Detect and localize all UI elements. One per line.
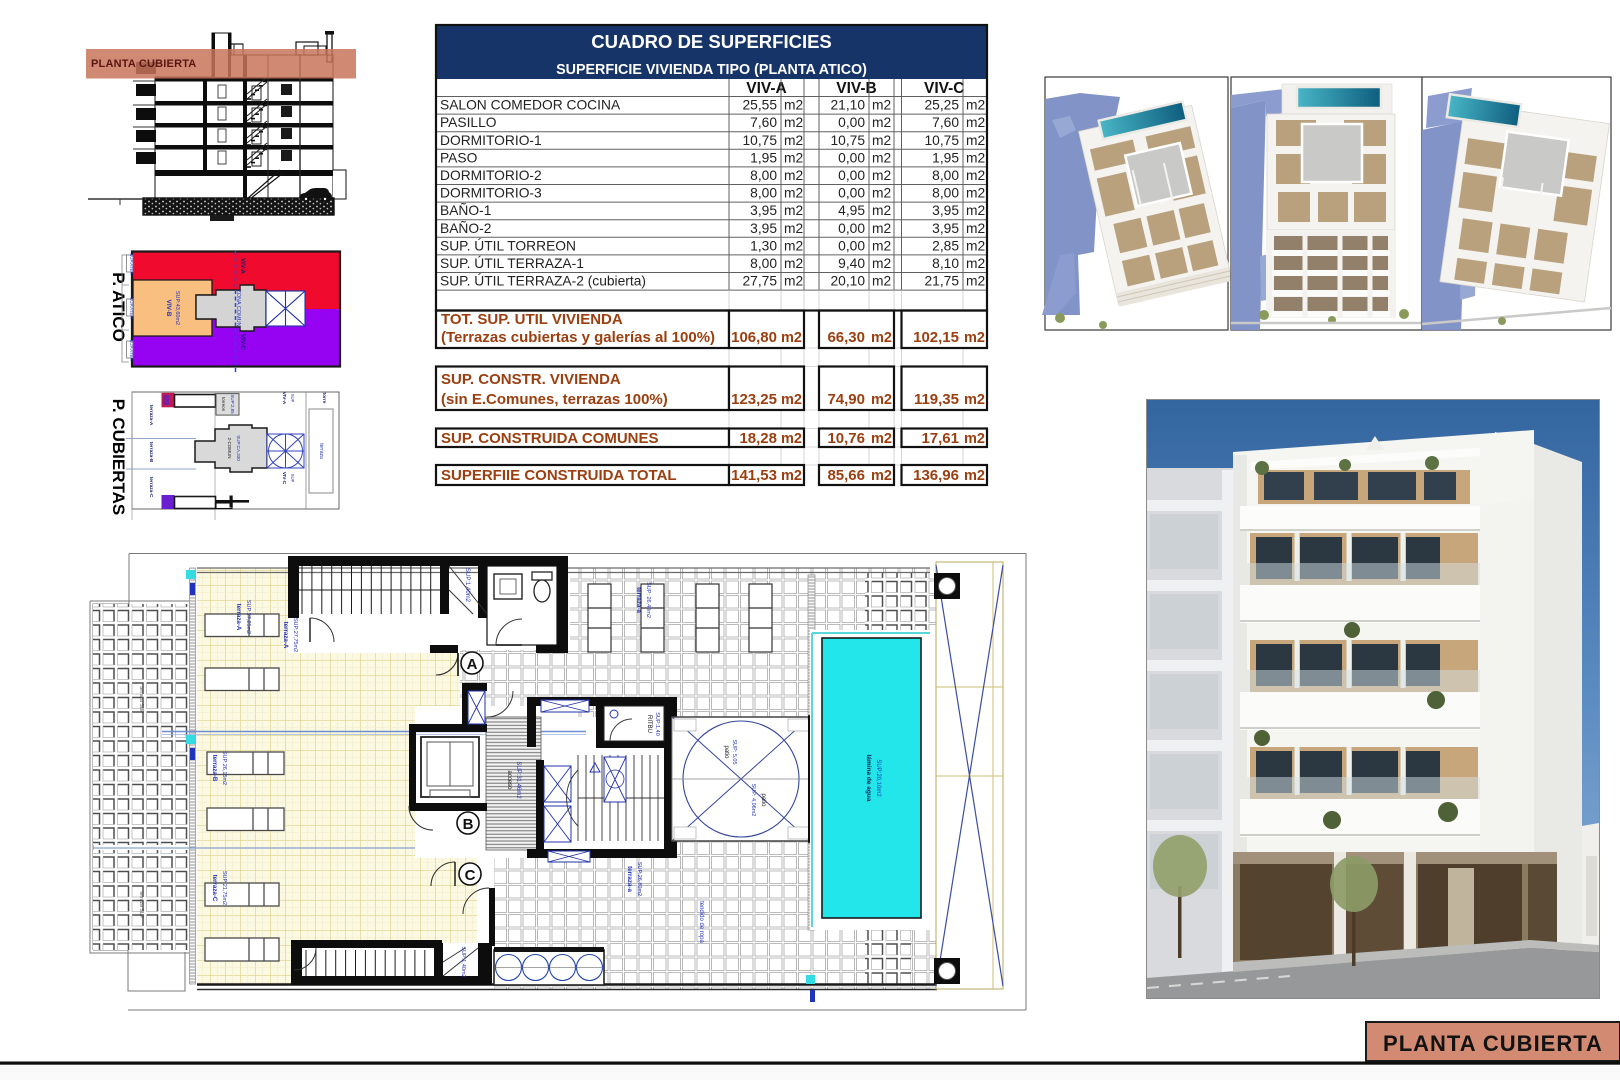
- svg-text:0,00: 0,00: [838, 221, 865, 236]
- svg-text:3,95: 3,95: [750, 203, 777, 218]
- svg-text:141,53: 141,53: [731, 467, 777, 484]
- svg-text:VIV-B: VIV-B: [165, 300, 172, 317]
- svg-text:SUPERFICIE VIVIENDA TIPO (PLA: SUPERFICIE VIVIENDA TIPO (PLANTA ATICO): [556, 62, 867, 78]
- svg-text:DORMITORIO-1: DORMITORIO-1: [440, 133, 542, 148]
- svg-text:TOT. SUP. UTIL VIVIENDA: TOT. SUP. UTIL VIVIENDA: [441, 311, 623, 328]
- svg-text:m2: m2: [872, 186, 891, 201]
- svg-text:SUP. ÚTIL TERRAZA-1: SUP. ÚTIL TERRAZA-1: [440, 255, 584, 271]
- svg-text:2,85: 2,85: [932, 238, 959, 253]
- svg-text:VIV-C: VIV-C: [281, 472, 287, 485]
- svg-text:ZONA COMUN: ZONA COMUN: [235, 289, 241, 326]
- svg-text:m2: m2: [781, 468, 802, 484]
- svg-text:(sin E.Comunes, terrazas 100%): (sin E.Comunes, terrazas 100%): [441, 391, 668, 408]
- svg-text:VIV-A: VIV-A: [239, 258, 245, 274]
- svg-text:m2: m2: [781, 431, 802, 447]
- svg-text:SUP: SUP: [290, 474, 295, 483]
- svg-text:SUP:26,15m2: SUP:26,15m2: [221, 751, 227, 785]
- svg-text:SUP.ATER: SUP.ATER: [129, 297, 134, 319]
- svg-text:terraza-a: terraza-a: [626, 866, 633, 892]
- svg-text:m2: m2: [964, 330, 985, 346]
- svg-text:m2: m2: [966, 256, 985, 271]
- svg-text:1,95: 1,95: [750, 150, 777, 165]
- svg-text:terraza-A: terraza-A: [282, 622, 289, 649]
- svg-text:BAÑO-1: BAÑO-1: [440, 202, 491, 218]
- svg-text:terraza-A: terraza-A: [148, 405, 154, 426]
- svg-text:m2: m2: [964, 431, 985, 447]
- svg-text:m2: m2: [872, 203, 891, 218]
- svg-text:m2: m2: [966, 168, 985, 183]
- svg-text:0,00: 0,00: [838, 150, 865, 165]
- svg-text:m2: m2: [871, 468, 892, 484]
- svg-text:SALON COMEDOR COCINA: SALON COMEDOR COCINA: [440, 98, 621, 113]
- svg-text:SUP:21,75m2: SUP:21,75m2: [221, 871, 227, 905]
- svg-text:m2: m2: [966, 238, 985, 253]
- svg-text:123,25: 123,25: [731, 391, 777, 408]
- svg-text:RITBU: RITBU: [646, 715, 652, 733]
- svg-text:8,00: 8,00: [932, 186, 959, 201]
- svg-text:m2: m2: [966, 221, 985, 236]
- svg-text:3,95: 3,95: [932, 203, 959, 218]
- svg-text:m2: m2: [966, 186, 985, 201]
- svg-text:m2: m2: [964, 468, 985, 484]
- svg-text:m2: m2: [966, 274, 985, 289]
- svg-text:m2: m2: [872, 274, 891, 289]
- svg-text:8,00: 8,00: [750, 186, 777, 201]
- svg-text:25,25: 25,25: [924, 98, 959, 113]
- svg-text:terraza-a: terraza-a: [635, 587, 642, 613]
- svg-text:VIV-C: VIV-C: [924, 80, 964, 97]
- svg-text:66,30: 66,30: [827, 329, 865, 346]
- svg-text:VIV-A: VIV-A: [281, 392, 287, 405]
- svg-text:SUP: 26,40m2: SUP: 26,40m2: [645, 582, 651, 618]
- svg-text:lámina de agua: lámina de agua: [865, 755, 872, 802]
- svg-text:m2: m2: [784, 168, 803, 183]
- svg-text:SUP: 4,06m2: SUP: 4,06m2: [750, 784, 756, 817]
- svg-text:PLANTA CUBIERTA: PLANTA CUBIERTA: [1383, 1031, 1603, 1056]
- svg-text:tendido de ropa: tendido de ropa: [698, 901, 704, 943]
- svg-text:m2: m2: [872, 150, 891, 165]
- svg-text:terraza-B: terraza-B: [148, 442, 154, 463]
- svg-text:25,55: 25,55: [742, 98, 777, 113]
- svg-text:m2: m2: [784, 256, 803, 271]
- svg-text:SUP.ATER: SUP.ATER: [129, 339, 134, 361]
- svg-text:3,95: 3,95: [932, 221, 959, 236]
- svg-text:8,10: 8,10: [932, 256, 959, 271]
- svg-text:terraza SUP: terraza SUP: [138, 686, 144, 714]
- svg-text:3,95: 3,95: [750, 221, 777, 236]
- svg-text:m2: m2: [781, 330, 802, 346]
- svg-text:m2: m2: [784, 133, 803, 148]
- svg-text:patio: patio: [723, 745, 729, 759]
- svg-text:SUP:27,75m2: SUP:27,75m2: [292, 618, 298, 652]
- svg-text:m2: m2: [871, 392, 892, 408]
- svg-text:106,80: 106,80: [731, 329, 777, 346]
- svg-text:B: B: [463, 816, 474, 833]
- svg-text:m2: m2: [966, 98, 985, 113]
- svg-text:m2: m2: [784, 186, 803, 201]
- svg-text:17,61: 17,61: [921, 430, 959, 447]
- svg-text:m2: m2: [784, 238, 803, 253]
- svg-text:2-COMUN: 2-COMUN: [227, 438, 232, 459]
- svg-text:10,75: 10,75: [830, 133, 865, 148]
- svg-text:85,66: 85,66: [827, 467, 865, 484]
- svg-text:SUP:27,25m2: SUP:27,25m2: [245, 600, 251, 634]
- svg-text:m2: m2: [966, 150, 985, 165]
- svg-text:0,00: 0,00: [838, 186, 865, 201]
- svg-text:terraza-A: terraza-A: [235, 604, 242, 631]
- svg-text:20,10: 20,10: [830, 274, 865, 289]
- svg-text:10,75: 10,75: [742, 133, 777, 148]
- svg-text:terraza-C: terraza-C: [211, 875, 218, 902]
- svg-text:m2: m2: [872, 168, 891, 183]
- svg-text:m2: m2: [872, 221, 891, 236]
- svg-text:m2: m2: [872, 256, 891, 271]
- svg-text:C: C: [465, 867, 476, 884]
- svg-text:m2: m2: [781, 392, 802, 408]
- svg-text:terraza SUP: terraza SUP: [138, 891, 144, 919]
- svg-text:P. CUBIERTAS: P. CUBIERTAS: [109, 399, 128, 516]
- svg-text:PLANTA CUBIERTA: PLANTA CUBIERTA: [91, 58, 196, 70]
- svg-text:74,90: 74,90: [827, 391, 865, 408]
- svg-text:8,00: 8,00: [750, 168, 777, 183]
- svg-text:0,00: 0,00: [838, 115, 865, 130]
- svg-text:10,75: 10,75: [924, 133, 959, 148]
- svg-text:(Terrazas cubiertas y galerías: (Terrazas cubiertas y galerías al 100%): [441, 329, 715, 346]
- svg-text:terraza-B: terraza-B: [211, 755, 218, 782]
- svg-text:136,96: 136,96: [913, 467, 959, 484]
- svg-text:SUP:1,40m2: SUP:1,40m2: [460, 946, 466, 977]
- svg-text:1,95: 1,95: [932, 150, 959, 165]
- svg-text:119,35: 119,35: [914, 391, 959, 408]
- svg-text:m2: m2: [871, 431, 892, 447]
- svg-text:SUP: 5,05: SUP: 5,05: [731, 739, 737, 764]
- svg-text:m2: m2: [784, 98, 803, 113]
- svg-text:1,30: 1,30: [750, 238, 777, 253]
- svg-text:SUP. ÚTIL TORREON: SUP. ÚTIL TORREON: [440, 237, 576, 253]
- svg-text:m2: m2: [966, 115, 985, 130]
- svg-text:m2: m2: [784, 150, 803, 165]
- svg-text:m2: m2: [784, 221, 803, 236]
- svg-text:8,00: 8,00: [932, 168, 959, 183]
- svg-text:CUADRO DE SUPERFICIES: CUADRO DE SUPERFICIES: [591, 31, 832, 52]
- svg-text:18,28: 18,28: [739, 430, 777, 447]
- svg-text:m2: m2: [784, 274, 803, 289]
- svg-text:SUP. CONSTR. VIVIENDA: SUP. CONSTR. VIVIENDA: [441, 371, 621, 388]
- svg-text:P. ATICO: P. ATICO: [109, 272, 128, 342]
- svg-text:4,95: 4,95: [838, 203, 865, 218]
- svg-text:SUP:20,10m2: SUP:20,10m2: [875, 759, 881, 797]
- svg-text:SUP:1,40m2: SUP:1,40m2: [464, 568, 470, 603]
- svg-text:DORMITORIO-3: DORMITORIO-3: [440, 186, 542, 201]
- svg-text:0,00: 0,00: [838, 238, 865, 253]
- svg-text:m2: m2: [872, 98, 891, 113]
- svg-text:27,75: 27,75: [742, 274, 777, 289]
- svg-text:patio: patio: [760, 793, 766, 807]
- svg-text:9,40: 9,40: [838, 256, 865, 271]
- svg-text:SUPERFIIE CONSTRUIDA TOTAL: SUPERFIIE CONSTRUIDA TOTAL: [441, 467, 677, 484]
- svg-text:terraza-C: terraza-C: [148, 477, 154, 498]
- svg-text:SUP. CONSTRUIDA COMUNES: SUP. CONSTRUIDA COMUNES: [441, 430, 659, 447]
- svg-text:VIV-C: VIV-C: [239, 334, 245, 350]
- svg-text:SUP:31,46m2: SUP:31,46m2: [515, 761, 521, 799]
- svg-text:DORMITORIO-2: DORMITORIO-2: [440, 168, 542, 183]
- svg-text:SUP:2,85: SUP:2,85: [230, 394, 235, 414]
- svg-text:PASO: PASO: [440, 150, 478, 165]
- svg-text:SUP: SUP: [290, 394, 295, 403]
- svg-text:torre: torre: [321, 393, 327, 404]
- svg-text:SUP:1,40: SUP:1,40: [654, 712, 660, 736]
- svg-text:m2: m2: [966, 203, 985, 218]
- svg-text:21,10: 21,10: [830, 98, 865, 113]
- svg-text:m2: m2: [784, 115, 803, 130]
- svg-text:torreon: torreon: [221, 397, 226, 412]
- svg-text:SUP:CA,330: SUP:CA,330: [236, 435, 241, 461]
- svg-text:A: A: [467, 656, 478, 673]
- svg-text:7,60: 7,60: [932, 115, 959, 130]
- svg-text:m2: m2: [872, 133, 891, 148]
- svg-text:m2: m2: [871, 330, 892, 346]
- svg-text:102,15: 102,15: [913, 329, 959, 346]
- svg-text:VIV-B: VIV-B: [836, 80, 876, 97]
- svg-text:PASILLO: PASILLO: [440, 115, 497, 130]
- svg-text:m2: m2: [872, 115, 891, 130]
- svg-text:SUP.ATER: SUP.ATER: [129, 253, 134, 275]
- svg-text:m2: m2: [872, 238, 891, 253]
- svg-text:m2: m2: [784, 203, 803, 218]
- svg-text:SUP:26,80m2: SUP:26,80m2: [636, 862, 642, 896]
- svg-text:10,76: 10,76: [827, 430, 865, 447]
- svg-text:BAÑO-2: BAÑO-2: [440, 220, 491, 236]
- svg-text:m2: m2: [966, 133, 985, 148]
- svg-text:21,75: 21,75: [924, 274, 959, 289]
- svg-text:SUP. ÚTIL TERRAZA-2 (cubierta): SUP. ÚTIL TERRAZA-2 (cubierta): [440, 273, 646, 289]
- svg-text:acceso: acceso: [506, 770, 512, 790]
- svg-text:SUP:43,60m2: SUP:43,60m2: [174, 291, 180, 325]
- svg-text:terraza: terraza: [318, 443, 324, 459]
- svg-text:m2: m2: [964, 392, 985, 408]
- svg-text:8,00: 8,00: [750, 256, 777, 271]
- svg-text:7,60: 7,60: [750, 115, 777, 130]
- svg-text:0,00: 0,00: [838, 168, 865, 183]
